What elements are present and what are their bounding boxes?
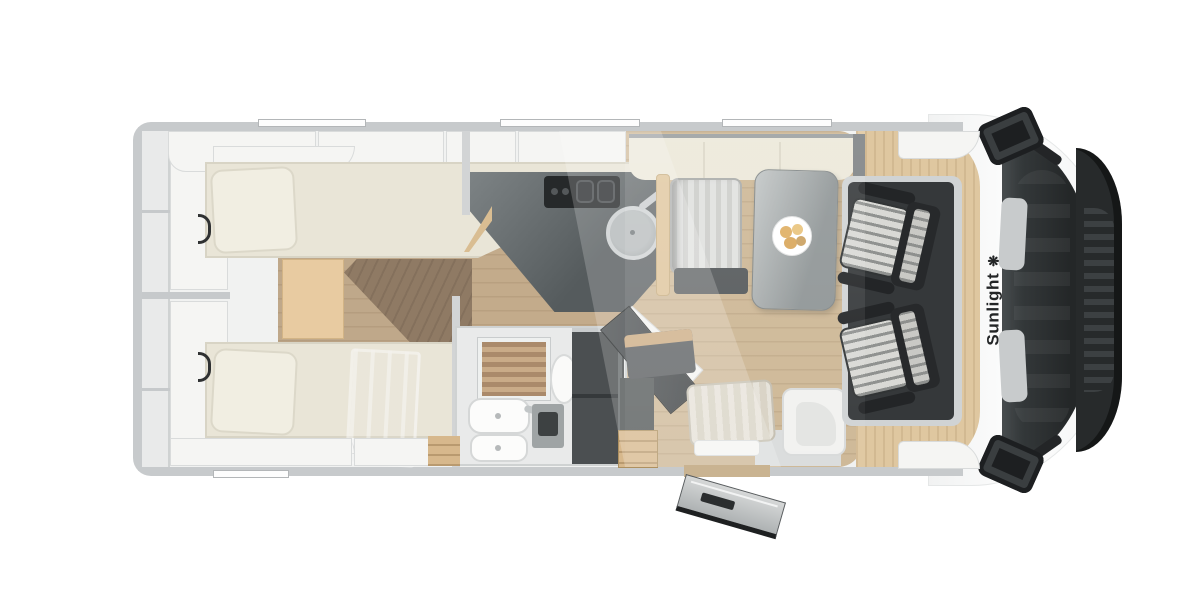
window-slot-top-3 bbox=[722, 119, 832, 127]
seat-backrest-stripe bbox=[898, 310, 930, 386]
shower-tray-slats bbox=[478, 338, 550, 400]
rear-storage-column bbox=[142, 131, 170, 467]
bedroom-step-light-wood bbox=[282, 259, 344, 339]
sunlight-logo-icon: ❋ bbox=[986, 254, 1003, 266]
grille-slats bbox=[1084, 208, 1114, 392]
window-slot-bottom bbox=[213, 470, 289, 478]
entry-door-opening bbox=[684, 465, 770, 477]
pillow-bottom-bed bbox=[210, 348, 298, 436]
bathroom-counter-inset bbox=[538, 412, 558, 436]
stove-knob-2 bbox=[562, 188, 569, 195]
bathroom-counter bbox=[532, 404, 564, 448]
brand-name: Sunlight bbox=[984, 273, 1004, 346]
rear-shelf-line-1 bbox=[142, 210, 170, 213]
glare-overlay-2 bbox=[625, 131, 865, 467]
cab-entry-panel-bottom bbox=[898, 441, 980, 469]
wood-drawer-bed-foot bbox=[428, 436, 460, 466]
partition-bed-kitchen bbox=[462, 131, 470, 215]
entry-door-open bbox=[676, 474, 786, 539]
vanity-drain-1 bbox=[495, 413, 501, 419]
window-slot-top-2 bbox=[500, 119, 640, 127]
vanity-drain-2 bbox=[495, 445, 501, 451]
brand-label: Sunlight ❋ bbox=[976, 225, 1012, 375]
pillow-top-bed bbox=[210, 166, 298, 254]
motorhome-floorplan-scene: Sunlight ❋ bbox=[0, 0, 1200, 600]
entry-door-handle-bar bbox=[700, 492, 735, 510]
seat-backrest-stripe bbox=[899, 208, 931, 284]
rear-storage-divider bbox=[142, 292, 230, 299]
window-slot-top-1 bbox=[258, 119, 366, 127]
bed-base-cabinet-1 bbox=[170, 438, 352, 466]
rear-shelf-line-2 bbox=[142, 388, 170, 391]
stove-knob-1 bbox=[551, 188, 558, 195]
